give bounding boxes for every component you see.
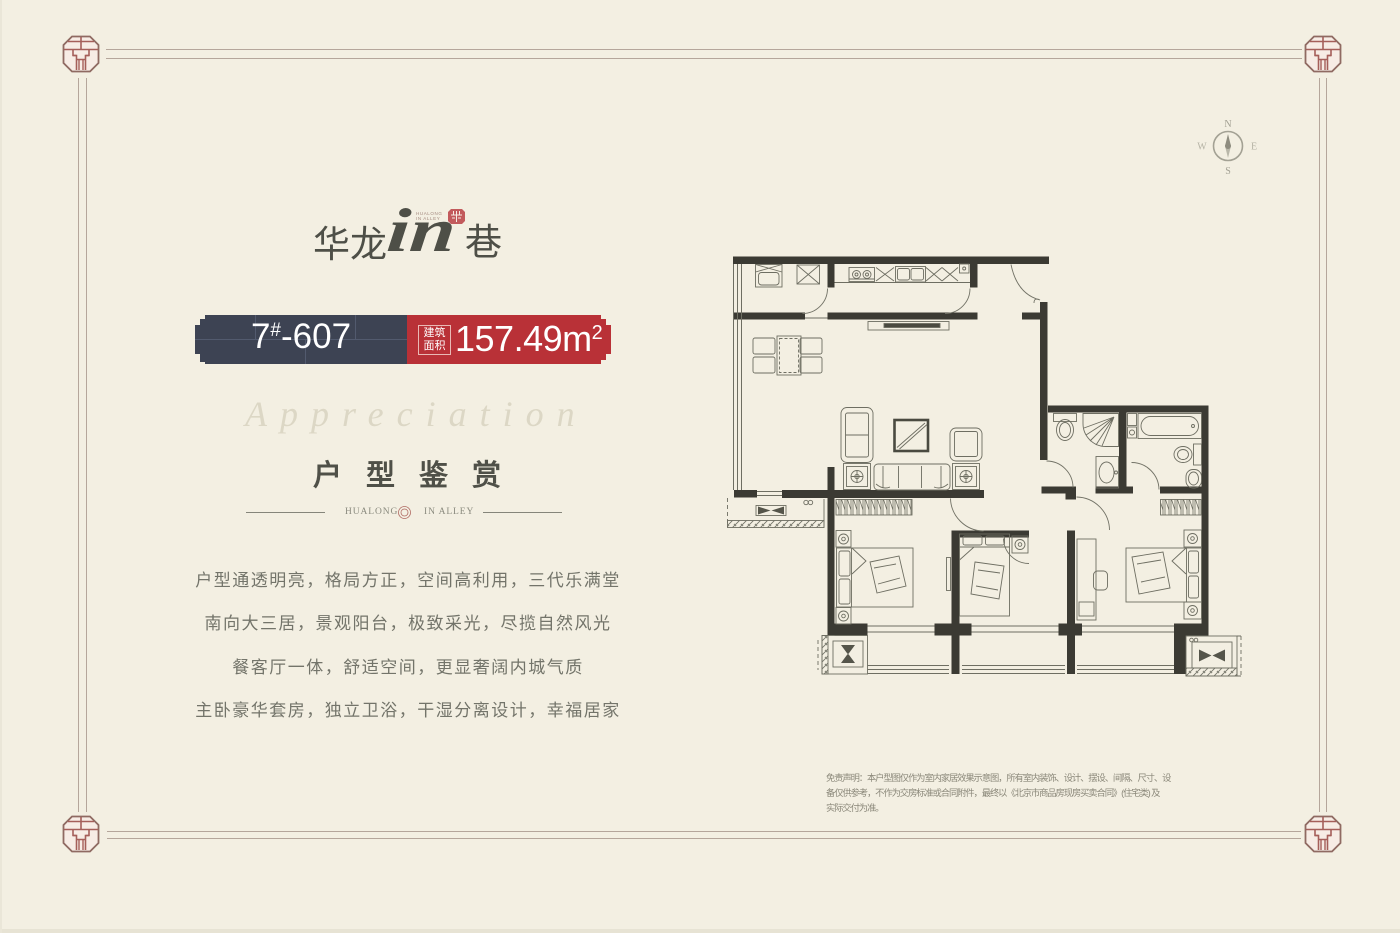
svg-text:S: S <box>1225 166 1231 177</box>
svg-text:W: W <box>1197 142 1207 153</box>
svg-text:N: N <box>1224 119 1231 130</box>
svg-text:E: E <box>1251 142 1257 153</box>
